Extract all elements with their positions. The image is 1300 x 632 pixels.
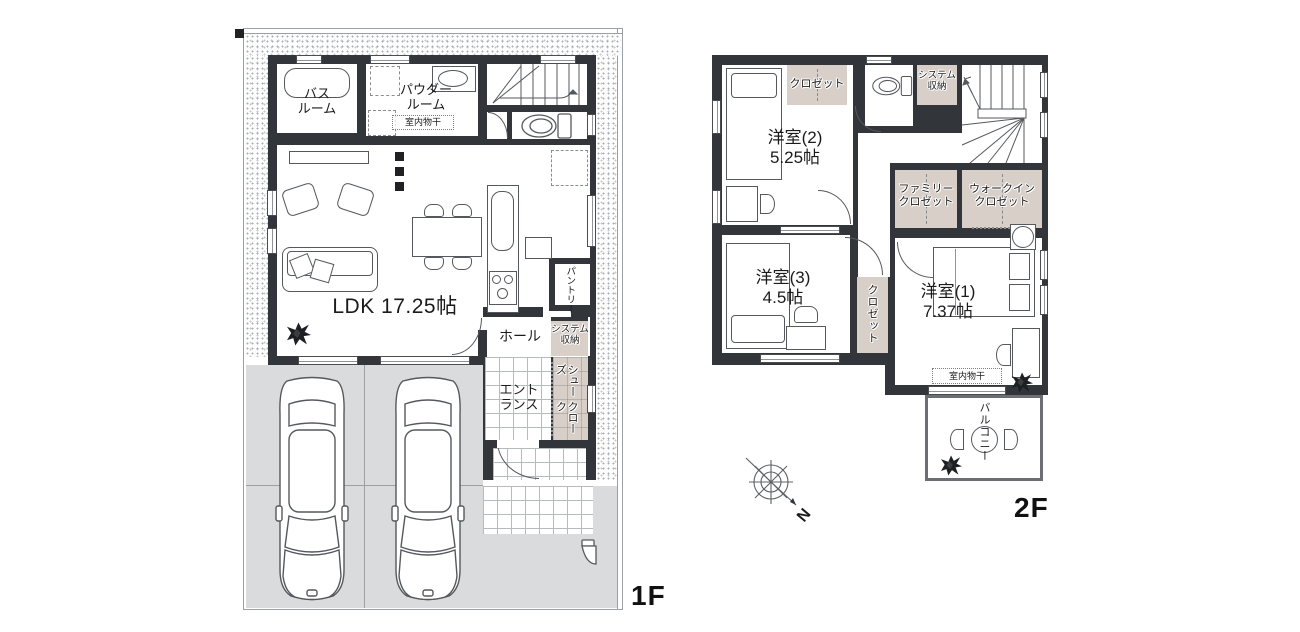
stove-burner xyxy=(497,288,508,299)
lot-corner-marker xyxy=(235,29,244,38)
label-closet-mid: クロゼット xyxy=(865,284,878,344)
label-powder-drying: 室内物干 xyxy=(392,115,454,130)
label-bed1-line1: 洋室(1) xyxy=(921,282,976,301)
window xyxy=(267,190,277,216)
window xyxy=(866,56,892,64)
window xyxy=(587,385,596,413)
chair-bedroom3 xyxy=(794,306,818,323)
window xyxy=(587,114,596,136)
label-bed3-line1: 洋室(3) xyxy=(756,268,811,287)
window xyxy=(760,354,840,363)
label-wic-line2: クロゼット xyxy=(975,196,1030,208)
corridor-2f-a xyxy=(858,133,962,163)
dining-chair xyxy=(424,204,444,217)
bed-pillow xyxy=(1009,253,1030,280)
label-sys1-line2: 収納 xyxy=(560,335,579,346)
entrance-shoe-divider xyxy=(551,362,553,436)
label-bedroom3: 洋室(3) 4.5帖 xyxy=(728,268,838,308)
planting-band-right xyxy=(596,56,617,480)
stairs-1f-treads xyxy=(487,64,587,105)
label-pantry: パントリー xyxy=(564,266,575,314)
window xyxy=(370,55,410,64)
label-fc-line1: ファミリー xyxy=(899,183,954,195)
label-sys2-line1: システム xyxy=(918,70,956,81)
dining-chair xyxy=(452,204,472,217)
label-entrance-line2: ランス xyxy=(500,397,539,412)
tv-board xyxy=(289,151,369,164)
desk-bedroom2 xyxy=(726,186,758,222)
porch-wall-left xyxy=(483,448,493,480)
dining-table xyxy=(412,217,482,257)
approach-side xyxy=(593,486,617,534)
label-hall: ホール xyxy=(492,328,548,345)
wall-dot xyxy=(395,152,404,161)
wall-dot xyxy=(395,182,404,191)
chair-bedroom2 xyxy=(760,194,775,214)
window xyxy=(380,356,470,365)
kitchen-cabinet xyxy=(525,237,552,259)
refrigerator-space xyxy=(551,150,588,186)
window xyxy=(298,356,358,365)
outdoor-tap-icon xyxy=(578,540,602,568)
lot-boundary-inner-line xyxy=(617,28,618,610)
label-wic-line1: ウォークイン xyxy=(969,183,1035,195)
label-shoe-cloak: シューズ クローク xyxy=(554,364,577,438)
stove-burner xyxy=(504,275,513,284)
plant-icon xyxy=(941,455,962,476)
label-fc-line2: クロゼット xyxy=(899,196,954,208)
label-system-storage-1f: システム 収納 xyxy=(550,324,590,346)
front-door-opening xyxy=(497,440,539,448)
plant-icon xyxy=(1012,372,1033,393)
window xyxy=(1040,112,1048,138)
label-bath: バス ルーム xyxy=(282,86,352,117)
plant-icon xyxy=(287,322,311,346)
stove-burner xyxy=(492,275,501,284)
label-bed2-line1: 洋室(2) xyxy=(768,128,823,147)
label-balcony: バルコニー xyxy=(977,402,990,462)
label-system-storage-2f: システム 収納 xyxy=(915,70,959,92)
label-ldk: LDK 17.25帖 xyxy=(310,295,480,320)
label-bed1-line2: 7.37帖 xyxy=(923,302,973,321)
label-shoe-line2: クローク xyxy=(554,401,577,438)
label-sys2-line2: 収納 xyxy=(927,81,946,92)
label-sys1-line1: システム xyxy=(551,324,589,335)
label-bath-line1: バス xyxy=(304,86,330,101)
balcony-chair-left xyxy=(950,429,964,450)
label-indoor-drying-2f: 室内物干 xyxy=(932,368,1002,384)
desk-bedroom1 xyxy=(1012,328,1040,378)
label-entrance-line1: エント xyxy=(499,382,538,397)
floor-label-1f: 1F xyxy=(631,580,666,612)
planting-band-left xyxy=(245,56,268,357)
compass-icon: N xyxy=(738,452,822,532)
balcony-chair-right xyxy=(1004,429,1018,450)
label-bed3-line2: 4.5帖 xyxy=(763,288,804,307)
label-closet-top: クロゼット xyxy=(787,78,847,91)
label-powder: パウダー ルーム xyxy=(386,82,466,113)
label-bath-line2: ルーム xyxy=(298,101,337,116)
label-bedroom2: 洋室(2) 5.25帖 xyxy=(740,128,850,168)
label-powder-line2: ルーム xyxy=(407,97,446,112)
window xyxy=(1040,285,1048,315)
bed-pillow xyxy=(1009,284,1030,311)
stairs-2f-treads xyxy=(962,65,1042,163)
toilet-icon-1f xyxy=(516,112,574,140)
planting-band-top xyxy=(245,34,621,56)
bed-pillow xyxy=(731,73,777,98)
window xyxy=(712,190,721,224)
porch-wall-right xyxy=(586,448,596,480)
label-bed2-line2: 5.25帖 xyxy=(770,148,820,167)
car-icon xyxy=(392,372,464,604)
window xyxy=(928,386,1006,395)
dining-chair xyxy=(424,257,444,270)
window xyxy=(587,195,596,247)
floor-label-2f: 2F xyxy=(1014,492,1049,524)
label-bedroom1: 洋室(1) 7.37帖 xyxy=(898,282,998,322)
car-icon xyxy=(276,372,348,604)
approach-tiles xyxy=(483,486,593,534)
label-powder-line1: パウダー xyxy=(400,82,452,97)
parking-separator xyxy=(364,365,365,608)
window xyxy=(267,228,277,254)
window xyxy=(540,55,576,64)
label-shoe-line1: シューズ xyxy=(554,364,577,401)
label-walkin-closet: ウォークイン クロゼット xyxy=(960,183,1044,209)
dining-chair xyxy=(452,257,472,270)
window xyxy=(1040,72,1048,98)
compass-north-label: N xyxy=(794,506,814,526)
desk-bedroom3 xyxy=(786,326,826,350)
window xyxy=(712,100,721,134)
bed-pillow xyxy=(731,315,785,343)
side-table-top xyxy=(1012,226,1034,248)
wall-ldk-hall xyxy=(478,330,487,357)
toilet-icon-2f xyxy=(868,72,914,100)
chair-bedroom1 xyxy=(996,344,1011,366)
floorplan-canvas: バス ルーム パウダー ルーム 室内物干 xyxy=(0,0,1300,632)
wall-dot xyxy=(395,167,404,176)
window xyxy=(296,55,322,64)
label-entrance: エント ランス xyxy=(490,382,548,413)
window xyxy=(780,226,840,234)
label-family-closet: ファミリー クロゼット xyxy=(893,183,959,209)
kitchen-sink xyxy=(491,191,514,251)
window xyxy=(1040,250,1048,280)
